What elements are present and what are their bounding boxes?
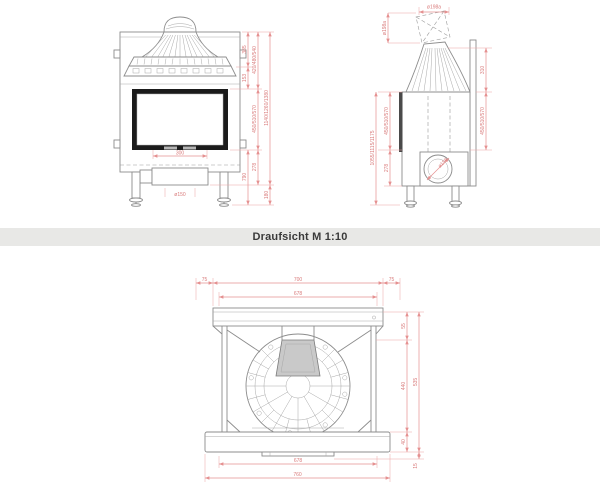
view-title-band: Draufsicht M 1:10 [0, 228, 600, 246]
dim-front-duct-height: 278 [252, 163, 258, 172]
dim-front-flue-diameter: ø150 [174, 192, 186, 198]
dim-side-left-door-variants: 450/510/570 [384, 107, 390, 135]
dim-side-flue-side-diameter: ø198a [382, 21, 388, 35]
front-bottom-duct [152, 168, 208, 185]
dim-front-collar-height: 153 [242, 74, 248, 83]
dim-top-rear-depth: 55 [401, 323, 407, 329]
dim-front-upper-variants: 420/480/540 [252, 46, 258, 74]
dim-front-base-height: 790 [242, 173, 248, 182]
top-flue-box [276, 340, 320, 376]
dim-top-lip-depth: 15 [413, 463, 419, 469]
side-rear-panel [470, 40, 476, 186]
dim-front-total-variants: 1140/1260/1380 [264, 90, 270, 126]
dim-top-front-depth: 40 [401, 439, 407, 445]
dim-front-duct-width: 300 [176, 151, 185, 157]
side-bottom-outlet: ø150 [420, 152, 468, 186]
front-view-drawing: 300 ø150 385 153 790 420/480/540 450/510… [114, 17, 274, 206]
side-heat-exchanger-dome [406, 42, 470, 92]
dim-side-door-variants: 450/510/570 [480, 107, 486, 135]
dim-top-body-depth: 440 [401, 382, 407, 391]
dim-top-inner-width-bottom: 678 [294, 458, 303, 464]
dim-top-front-width: 760 [293, 472, 302, 478]
dim-side-duct-height: 278 [384, 164, 390, 173]
top-front-panel [205, 432, 390, 456]
dim-side-hood-depth: 310 [480, 66, 486, 75]
side-flue-stub [416, 11, 450, 43]
top-dome-fan [246, 326, 350, 438]
drawing-svg: 300 ø150 385 153 790 420/480/540 450/510… [0, 0, 600, 503]
front-glass-door [132, 89, 228, 150]
top-view-drawing: 75 700 75 678 55 440 40 535 15 [196, 277, 424, 482]
dim-top-body-width: 700 [294, 277, 303, 283]
technical-drawing-page: 300 ø150 385 153 790 420/480/540 450/510… [0, 0, 600, 503]
top-rear-bar [213, 308, 383, 326]
dim-top-left-margin: 75 [202, 277, 208, 283]
view-title: Draufsicht M 1:10 [252, 231, 347, 243]
dim-top-right-margin: 75 [389, 277, 395, 283]
dim-side-flue-top-diameter: ø198a [427, 5, 441, 11]
dim-front-floor-clearance: 180 [264, 191, 270, 200]
dim-front-hood-height: 385 [242, 45, 248, 54]
dim-top-total-depth: 535 [413, 378, 419, 387]
side-door-frame [399, 92, 403, 152]
side-legs [405, 186, 462, 207]
dim-front-door-variants: 450/510/570 [252, 105, 258, 133]
side-view-drawing: ø150 ø198a ø198a 310 450/ [370, 5, 492, 208]
dim-side-total-variants: 1055/1115/1175 [370, 130, 376, 165]
dim-top-inner-width-top: 678 [294, 291, 303, 297]
